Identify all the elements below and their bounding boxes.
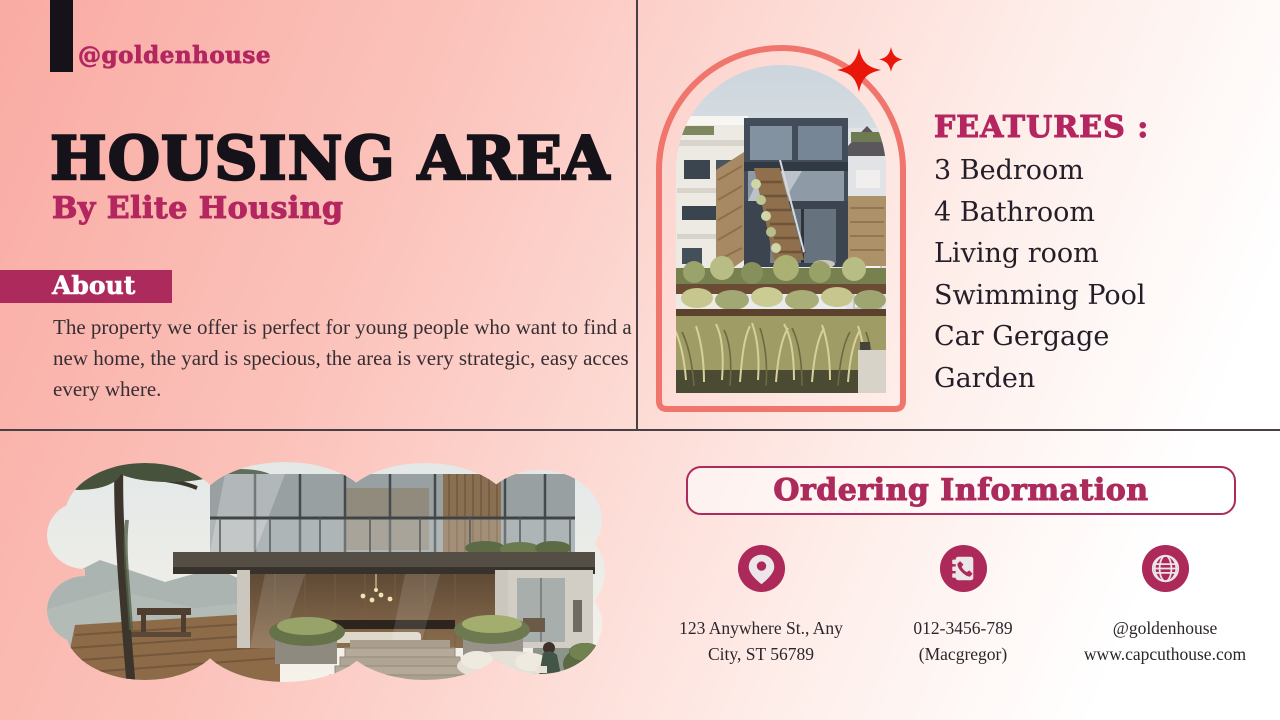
feature-item: Living room <box>934 233 1146 275</box>
page-subtitle: By Elite Housing <box>52 191 344 226</box>
features-heading: FEATURES : <box>934 110 1149 145</box>
villa-photo-illustration <box>45 460 605 684</box>
flyer-canvas: @goldenhouse HOUSING AREA By Elite Housi… <box>0 0 1280 720</box>
contact-web-line2: www.capcuthouse.com <box>1050 641 1280 667</box>
contact-location: 123 Anywhere St., Any City, ST 56789 <box>646 544 876 667</box>
villa-house-photo <box>45 460 605 684</box>
feature-item: Swimming Pool <box>934 275 1146 317</box>
arch-photo-illustration <box>674 65 886 393</box>
page-title: HOUSING AREA <box>50 124 610 194</box>
contact-website: @goldenhouse www.capcuthouse.com <box>1050 544 1280 667</box>
contact-address-line1: 123 Anywhere St., Any <box>646 615 876 641</box>
contact-address-line2: City, ST 56789 <box>646 641 876 667</box>
feature-item: Car Gergage <box>934 316 1146 358</box>
about-label: About <box>52 270 135 303</box>
features-list: 3 Bedroom 4 Bathroom Living room Swimmin… <box>934 150 1146 399</box>
about-section-bar: About <box>0 270 172 303</box>
brand-black-bar <box>50 0 73 72</box>
ordering-heading-box: Ordering Information <box>686 466 1236 515</box>
arch-house-photo <box>652 20 910 416</box>
contact-phone: 012-3456-789 (Macgregor) <box>848 544 1078 667</box>
about-paragraph: The property we offer is perfect for you… <box>53 312 638 405</box>
location-pin-icon <box>737 544 786 593</box>
ordering-heading: Ordering Information <box>688 468 1234 514</box>
feature-item: 3 Bedroom <box>934 150 1146 192</box>
brand-handle: @goldenhouse <box>78 42 271 69</box>
horizontal-divider <box>0 429 1280 431</box>
feature-item: 4 Bathroom <box>934 192 1146 234</box>
globe-icon <box>1141 544 1190 593</box>
contact-web-line1: @goldenhouse <box>1050 615 1280 641</box>
phone-book-icon <box>939 544 988 593</box>
contact-phone-line1: 012-3456-789 <box>848 615 1078 641</box>
feature-item: Garden <box>934 358 1146 400</box>
contact-phone-line2: (Macgregor) <box>848 641 1078 667</box>
